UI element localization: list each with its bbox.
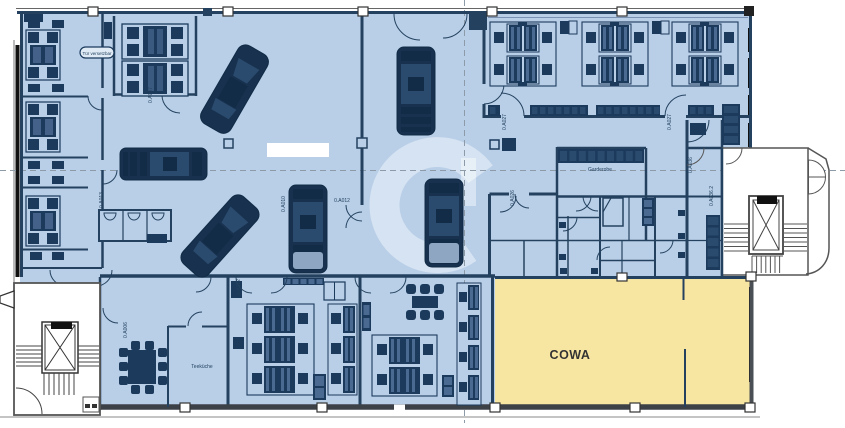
svg-text:Tür versetzbar: Tür versetzbar: [82, 51, 112, 56]
svg-text:Garderobe: Garderobe: [588, 167, 612, 173]
svg-text:0.A007: 0.A007: [148, 87, 154, 103]
svg-text:0.A027: 0.A027: [667, 114, 673, 130]
svg-text:0.A026: 0.A026: [510, 190, 516, 206]
svg-text:0.A036.2: 0.A036.2: [709, 186, 715, 206]
svg-text:0.A012: 0.A012: [236, 279, 242, 295]
svg-text:0.A010: 0.A010: [281, 196, 287, 212]
svg-text:0.A006: 0.A006: [123, 322, 129, 338]
svg-text:0.A036: 0.A036: [688, 157, 694, 173]
svg-text:COWA: COWA: [550, 348, 591, 362]
svg-text:0.A013: 0.A013: [99, 192, 105, 208]
svg-text:0.A027: 0.A027: [502, 114, 508, 130]
svg-text:Teeküche: Teeküche: [191, 364, 213, 370]
svg-text:0.A012: 0.A012: [334, 198, 350, 204]
